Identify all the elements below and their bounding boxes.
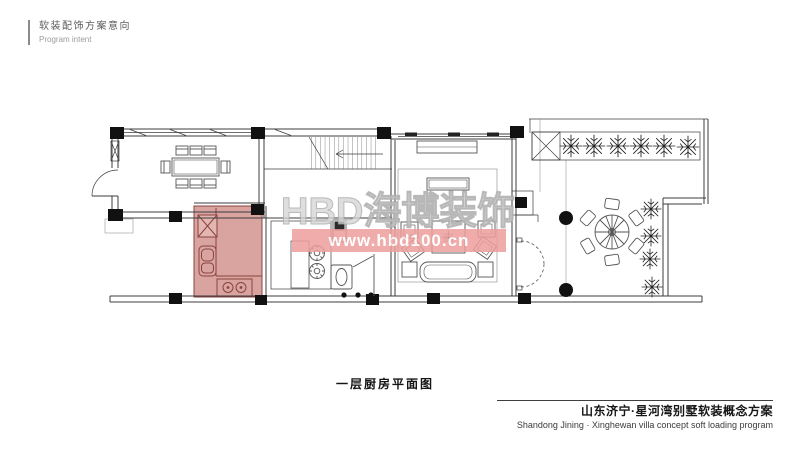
wash-basin-icon [310,264,325,279]
plant-icon [442,231,455,244]
entrance-door-arcs [517,238,544,290]
wash-basin-icon [310,246,325,261]
bench [420,262,476,282]
tv-console [417,141,477,153]
footer-divider [497,400,773,401]
living-room-set [398,141,497,282]
side-table [402,262,417,277]
console-table [427,178,469,190]
bathroom-cabinet [333,220,346,242]
bathroom [310,220,375,298]
armchair [401,239,424,262]
kitchen-highlight [194,206,262,297]
dining-chairs [161,146,230,188]
toilet-icon [331,265,352,289]
armchair [478,221,495,237]
entrance [512,191,544,290]
center-table [432,221,465,253]
footer-title-en: Shandong Jining · Xinghewan villa concep… [517,419,773,431]
armchair [473,237,496,260]
courtyard [532,132,700,297]
footer-block: 山东济宁·星河湾别墅软装概念方案 Shandong Jining · Xingh… [517,404,773,431]
courtyard-plants-column [640,199,663,298]
upper-staircase [309,137,383,169]
footer-title-cn: 山东济宁·星河湾别墅软装概念方案 [517,404,773,419]
dining-table-set [161,146,230,188]
courtyard-plants-row [560,135,700,159]
side-table [478,262,493,277]
plan-caption: 一层厨房平面图 [285,375,485,392]
armchair [401,222,418,238]
outdoor-round-table-set [578,198,645,266]
entry-door-arc [92,170,118,196]
